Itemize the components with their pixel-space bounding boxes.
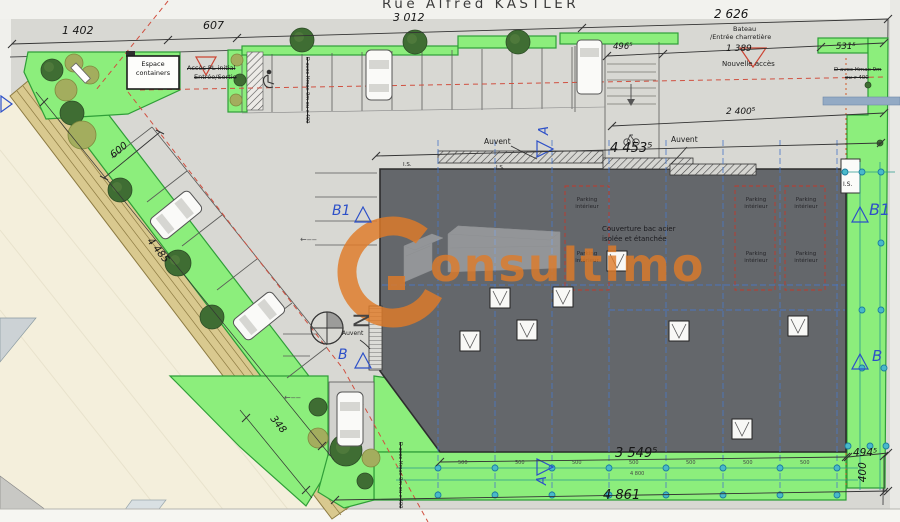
entree-charretiere-label: /Entrée charretière [710,34,771,41]
parking-interieur-label-5: Parkingintérieur [784,197,828,210]
dim-3012: 3 012 [393,12,425,23]
street-name: Rue Alfred KASTLER [382,0,579,12]
section-marker-a-south: A [536,476,549,485]
hmax-label-south: D avec Hmax 9m ou >400 [397,442,402,508]
dim-496: 496⁵ [613,43,633,52]
auvent-label-1: Auvent [484,138,511,146]
dim-1389: 1 389 [726,45,752,54]
dim-1402: 1 402 [62,25,94,36]
dim-2400: 2 400⁵ [726,108,755,117]
is-label-2: I.S. [496,166,505,172]
dim-bay-3: 500 [572,461,582,466]
dim-bay-6: 500 [743,461,753,466]
dim-494: 494⁵ [853,448,877,459]
north-arrow-icon [311,312,343,344]
is-label-1: I.S. [403,163,412,169]
bateau-label: Bateau [733,26,756,33]
parking-interieur-label-6: Parkingintérieur [784,251,828,264]
flow-arrow-2: ←‒‒ [284,394,301,402]
watermark-text: onsultimo [430,238,706,292]
dim-2626: 2 626 [714,8,748,20]
dim-bay-7: 500 [800,461,810,466]
hmax-label-west: D avec Hmax 9m ou >400 [304,57,309,123]
dim-3549: 3 549⁵ [615,447,657,460]
dim-400: 400 [858,462,869,482]
existing-crossing-bar [823,97,900,105]
hmax-label-right-2: ou >400 [845,76,869,82]
acces-initial-label-1: Accès PL initial [187,65,235,72]
dim-4453: 4 453⁵ [610,142,652,155]
dim-bay-total: 4 800 [630,472,644,477]
dim-bay-4: 500 [629,461,639,466]
section-marker-a-north: A [538,126,551,135]
building-footprint [380,169,846,452]
dim-531: 531⁵ [836,43,856,52]
dim-bay-1: 500 [458,461,468,466]
section-marker-b1-east: B1 [869,202,890,218]
parking-interieur-label-3: Parkingintérieur [734,197,778,210]
acces-initial-label-2: Entrée/Sortie [194,74,237,81]
hmax-label-right-1: D avec Hmax 9m [834,68,882,74]
dim-bay-5: 500 [686,461,696,466]
site-plan-screenshot: Rue Alfred KASTLER 1 402 607 3 012 2 626… [0,0,900,522]
auvent-label-2: Auvent [671,136,698,144]
is-label-3: I.S. [843,182,852,188]
section-marker-b1-west: B1 [332,204,351,218]
dim-607: 607 [203,20,224,31]
parking-interieur-label-4: Parkingintérieur [734,251,778,264]
north-letter: N [349,313,370,329]
auvent-label-3: Auvent [342,331,363,337]
section-marker-b-west: B [338,348,348,362]
espace-containers-label: Espace containers [128,60,178,78]
couverture-label-1: Couverture bac acier [602,226,675,233]
flow-arrow-1: ←‒‒ [300,236,317,244]
dim-bay-2: 500 [515,461,525,466]
nouvelle-acces-label: Nouvelle accès [722,61,775,68]
parking-interieur-label-1: Parkingintérieur [565,197,609,210]
section-marker-b-east: B [872,349,882,364]
dim-4861: 4 861 [603,489,640,502]
